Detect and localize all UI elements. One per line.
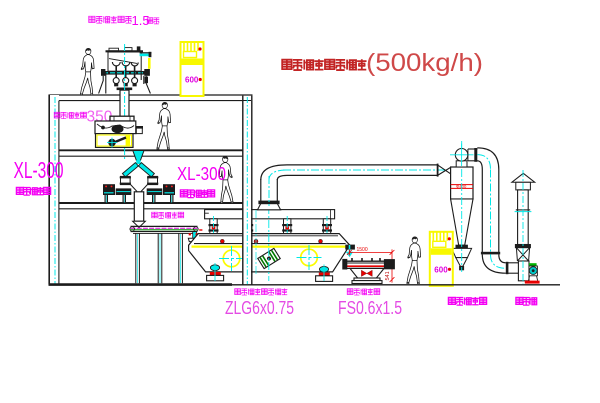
svg-text:FS0.6x1.5: FS0.6x1.5 xyxy=(338,297,402,318)
svg-text:ZLG6x0.75: ZLG6x0.75 xyxy=(225,297,294,318)
svg-text:XL-300: XL-300 xyxy=(14,157,64,183)
svg-text:(500kg/h): (500kg/h) xyxy=(366,49,483,77)
svg-text:541: 541 xyxy=(385,271,391,280)
svg-text:XL-300: XL-300 xyxy=(177,164,226,184)
svg-text:1500: 1500 xyxy=(357,247,368,253)
